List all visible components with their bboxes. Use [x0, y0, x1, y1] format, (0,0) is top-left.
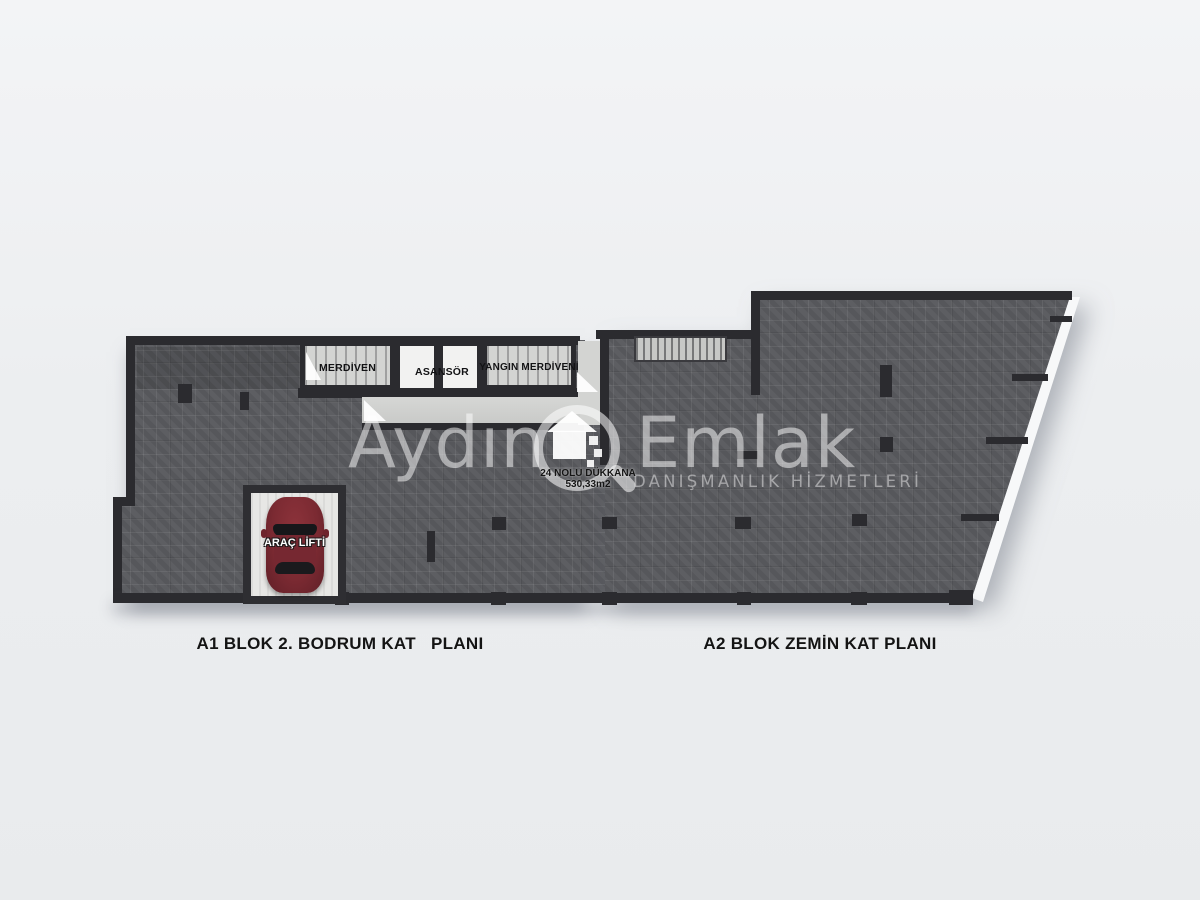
- column: [178, 384, 192, 403]
- column: [240, 392, 249, 410]
- shop-area: 530,33m2: [518, 479, 658, 490]
- logo-pixel-square: [589, 436, 598, 445]
- fire-escape-label: YANGIN MERDİVENİ: [478, 362, 580, 373]
- a2-top-wall-high: [751, 291, 1072, 300]
- a2-step-wall: [751, 291, 760, 395]
- wall-stub: [949, 590, 973, 605]
- column: [880, 365, 892, 397]
- brand-second-word: Emlak: [636, 408, 856, 478]
- shop-label: 24 NOLU DÜKKANA 530,33m2: [518, 468, 658, 490]
- ventilation-grille: [634, 336, 727, 362]
- a1-left-wall-lower: [113, 497, 122, 603]
- facade-tick: [1050, 316, 1072, 322]
- facade-tick: [961, 514, 999, 521]
- column: [735, 517, 751, 529]
- wall-stub: [851, 592, 867, 605]
- bottom-wall: [113, 593, 973, 603]
- facade-tick: [1012, 374, 1048, 381]
- a1-left-wall-upper: [126, 336, 135, 506]
- floorplan-canvas: MERDİVEN ASANSÖR YANGIN MERDİVENİ ARAÇ L…: [0, 0, 1200, 900]
- logo-pixel-square: [594, 449, 602, 457]
- logo-house-roof-icon: [547, 411, 597, 432]
- caption-a1-block: A1 BLOK 2. BODRUM KAT PLANI: [175, 634, 505, 654]
- brand-tagline: DANIŞMANLIK HİZMETLERİ: [633, 472, 922, 491]
- column: [602, 517, 617, 529]
- a1-parking-floor-extension: [117, 500, 157, 598]
- car-rear-window: [275, 562, 315, 574]
- logo-pixel-square: [587, 460, 594, 467]
- logo-house-body-icon: [553, 431, 586, 459]
- elevator-label: ASANSÖR: [397, 366, 487, 378]
- wall-stub: [602, 592, 617, 605]
- a1-floor-shadow-zone: [137, 347, 300, 389]
- brand-first-word: Aydın: [348, 408, 546, 478]
- caption-a2-block: A2 BLOK ZEMİN KAT PLANI: [655, 634, 985, 654]
- column: [492, 517, 506, 530]
- column: [880, 437, 893, 452]
- shop-name: 24 NOLU DÜKKANA: [518, 468, 658, 479]
- column: [427, 531, 435, 562]
- wall-stub: [491, 592, 506, 605]
- facade-tick: [986, 437, 1028, 444]
- column: [852, 514, 867, 526]
- stairs-label: MERDİVEN: [300, 362, 395, 374]
- car-lift-label: ARAÇ LİFTİ: [243, 537, 346, 549]
- wall-stub: [737, 592, 751, 605]
